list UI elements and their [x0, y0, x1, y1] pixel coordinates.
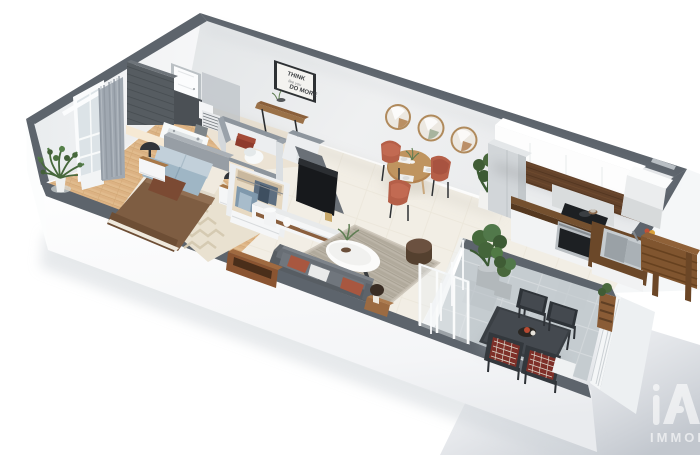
svg-text:IMMOB: IMMOB	[650, 430, 700, 445]
